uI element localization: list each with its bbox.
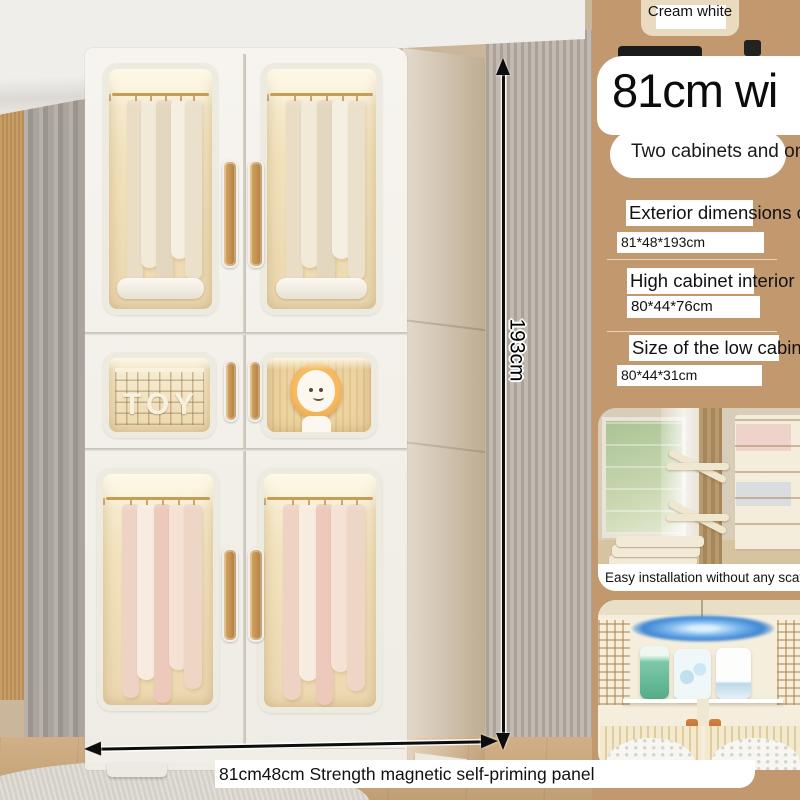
center-divider: [697, 699, 710, 726]
subtitle: Two cabinets and on: [631, 141, 800, 163]
bottom-right-door-window: [258, 468, 382, 713]
height-label: 193cm: [505, 318, 529, 381]
lion-plush: [290, 363, 342, 419]
rolled-blanket: [276, 278, 368, 300]
divider: [607, 259, 777, 260]
spec-value: 81*48*193cm: [617, 232, 764, 253]
spec-value: 80*44*76cm: [627, 296, 760, 318]
arrow-line: [93, 740, 489, 750]
middle-right-window: [261, 352, 377, 438]
door-handle: [248, 160, 264, 268]
lion-face: [297, 370, 335, 412]
top-left-door-window: [103, 63, 218, 315]
spec-heading-text: Size of the low cabinet:: [632, 337, 800, 359]
hanging-rod: [270, 93, 372, 96]
color-badge: Cream white: [641, 0, 739, 36]
panel: [612, 545, 700, 557]
door-handle: [222, 160, 238, 268]
folding-frame: [669, 437, 726, 492]
clothing-item: [299, 504, 318, 681]
feature-image-installation: Easy installation without any scattere: [598, 408, 800, 591]
height-measure-arrow: 193cm: [495, 58, 511, 750]
arrow-line: [502, 66, 505, 742]
clothing-item: [348, 100, 365, 280]
door-handle: [224, 360, 238, 422]
color-badge-label: Cream white: [641, 3, 739, 20]
wardrobe: TOY: [85, 48, 485, 786]
clothing-item: [347, 504, 365, 690]
clothing-item: [184, 504, 202, 689]
toy-basket-label: TOY: [123, 388, 199, 422]
wardrobe-front: TOY: [85, 48, 407, 770]
milk-powder-can: [674, 649, 712, 700]
clothing-item: [185, 100, 201, 280]
bottom-caption: 81cm48cm Strength magnetic self-priming …: [215, 760, 755, 788]
arrowhead-left-icon: [84, 742, 101, 756]
arrowhead-up-icon: [496, 58, 510, 75]
spec-heading-text: High cabinet interior siz: [630, 270, 800, 292]
arrowhead-right-icon: [481, 734, 498, 748]
hanging-rod: [106, 497, 209, 500]
lion-body: [302, 416, 331, 432]
feature-caption: Easy installation without any scattere: [598, 564, 800, 591]
door-handle: [248, 548, 264, 642]
divider: [607, 331, 777, 332]
toy-basket: TOY: [115, 368, 204, 424]
door-handle: [222, 548, 238, 642]
door-handle: [248, 360, 262, 422]
hanging-rod: [112, 93, 209, 96]
section-seam: [85, 332, 407, 335]
folded-panels: [609, 536, 697, 567]
hanging-rod: [267, 497, 372, 500]
erased-text-fragment: [744, 40, 761, 56]
mesh-door: [598, 620, 630, 705]
door-center-seam: [243, 54, 246, 762]
middle-left-window: TOY: [103, 352, 216, 438]
top-right-door-window: [261, 63, 382, 315]
milk-powder-can: [640, 646, 669, 699]
panel: [616, 536, 704, 548]
mesh-door: [777, 620, 800, 705]
spec-heading-text: Exterior dimensions of cab: [629, 202, 800, 224]
feature-image-interior: [598, 600, 800, 770]
cabinet-top: [598, 600, 800, 615]
section-seam: [85, 448, 407, 451]
rolled-blanket: [117, 278, 204, 300]
lion-mouth: [313, 394, 324, 401]
milk-powder-can: [716, 648, 752, 699]
product-listing-image: TOY: [0, 0, 800, 800]
wardrobe-side-panel: [403, 48, 485, 774]
headline: 81cm wi: [612, 63, 777, 118]
spec-value: 80*44*31cm: [617, 365, 762, 386]
magnetic-spark-effect: [632, 615, 775, 642]
bottom-left-door-window: [97, 468, 219, 711]
clothing-item: [137, 504, 156, 680]
wardrobe-foot: [107, 762, 167, 777]
card-cabinet: [735, 415, 800, 550]
